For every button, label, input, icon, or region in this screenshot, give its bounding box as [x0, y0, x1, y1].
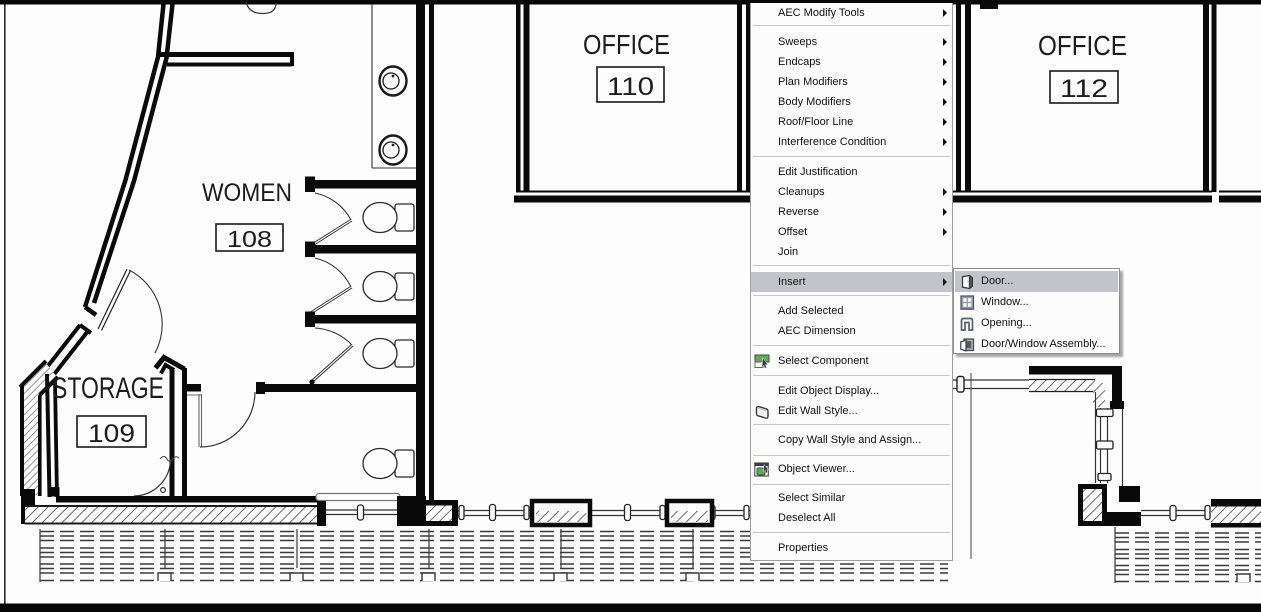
svg-text:112: 112 [1060, 75, 1108, 103]
svg-text:WOMEN: WOMEN [202, 179, 292, 207]
svg-text:OFFICE: OFFICE [583, 29, 670, 60]
svg-text:110: 110 [607, 73, 654, 101]
svg-text:OFFICE: OFFICE [1038, 30, 1127, 61]
svg-text:STORAGE: STORAGE [52, 372, 164, 405]
svg-text:109: 109 [88, 420, 135, 448]
svg-text:108: 108 [227, 226, 272, 252]
